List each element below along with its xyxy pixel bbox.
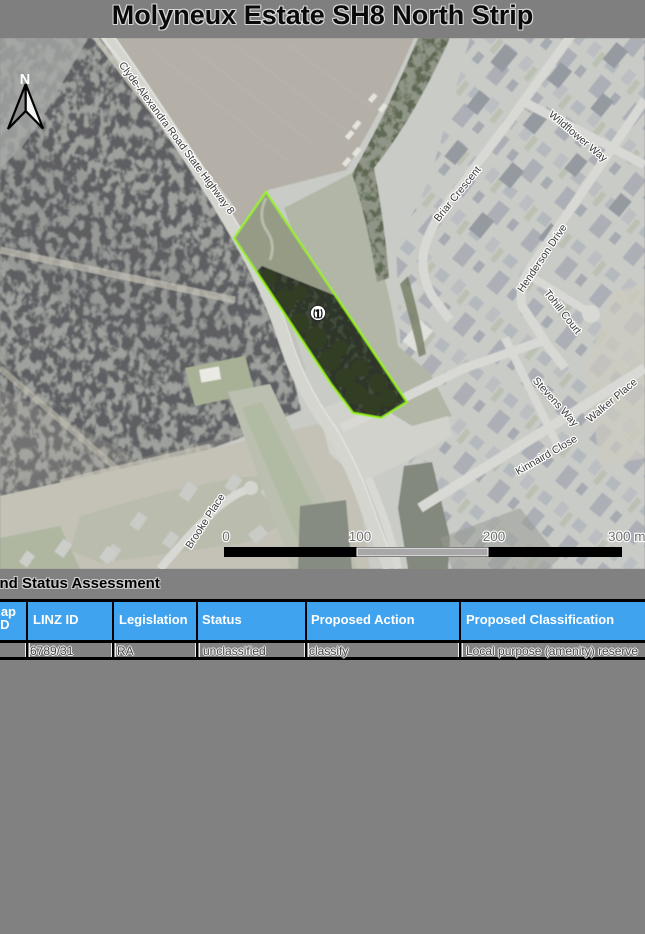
svg-text:300 m: 300 m [608, 529, 645, 544]
svg-text:0: 0 [222, 529, 230, 544]
svg-text:200: 200 [483, 529, 506, 544]
svg-text:100: 100 [349, 529, 372, 544]
